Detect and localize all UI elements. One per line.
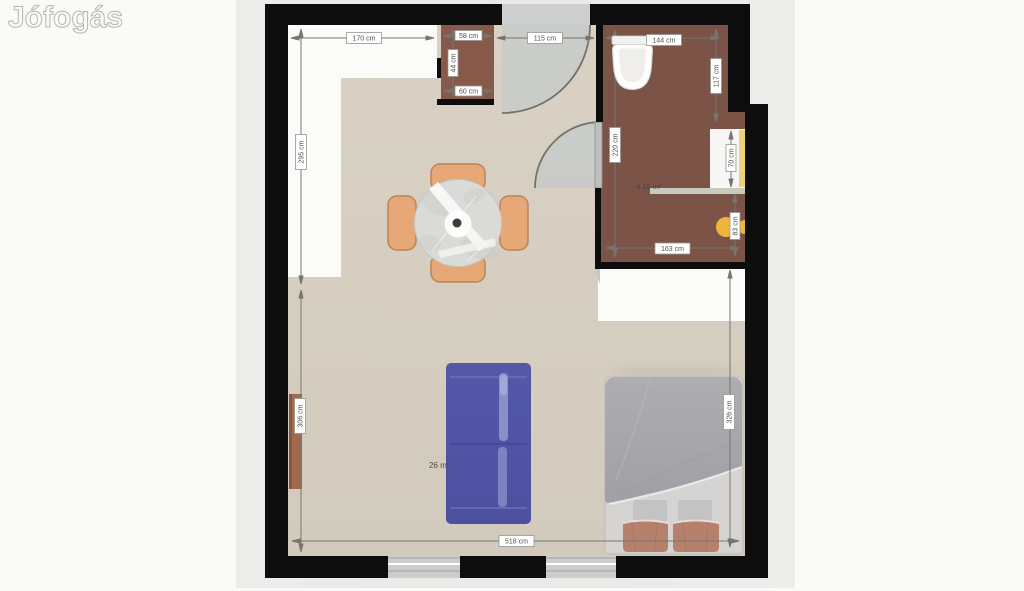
svg-text:518 cm: 518 cm: [505, 539, 528, 546]
svg-text:58 cm: 58 cm: [459, 33, 478, 40]
svg-text:163 cm: 163 cm: [661, 246, 684, 253]
svg-text:144 cm: 144 cm: [653, 38, 676, 45]
svg-text:220 cm: 220 cm: [613, 133, 620, 156]
svg-text:115 cm: 115 cm: [534, 36, 557, 43]
svg-text:170 cm: 170 cm: [353, 36, 376, 43]
svg-text:4.18 m²: 4.18 m²: [636, 182, 662, 191]
svg-text:326 cm: 326 cm: [727, 400, 734, 423]
svg-text:295 cm: 295 cm: [299, 140, 306, 163]
svg-text:60 cm: 60 cm: [459, 89, 478, 96]
svg-text:117 cm: 117 cm: [714, 65, 721, 88]
svg-text:44 cm: 44 cm: [451, 53, 458, 72]
svg-text:26 m²: 26 m²: [429, 461, 450, 470]
svg-text:70 cm: 70 cm: [729, 148, 736, 167]
svg-text:Jófogás: Jófogás: [8, 1, 123, 34]
svg-text:306 cm: 306 cm: [298, 404, 305, 427]
svg-text:83 cm: 83 cm: [733, 216, 740, 235]
